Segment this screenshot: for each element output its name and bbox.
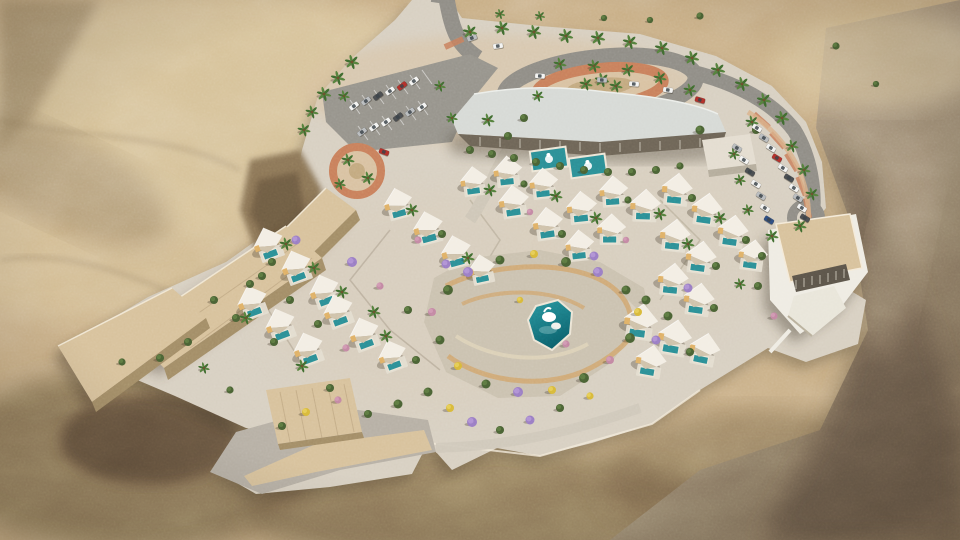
resort-aerial-render <box>0 0 960 540</box>
vignette-overlay <box>0 0 960 540</box>
aerial-render-viewport <box>0 0 960 540</box>
